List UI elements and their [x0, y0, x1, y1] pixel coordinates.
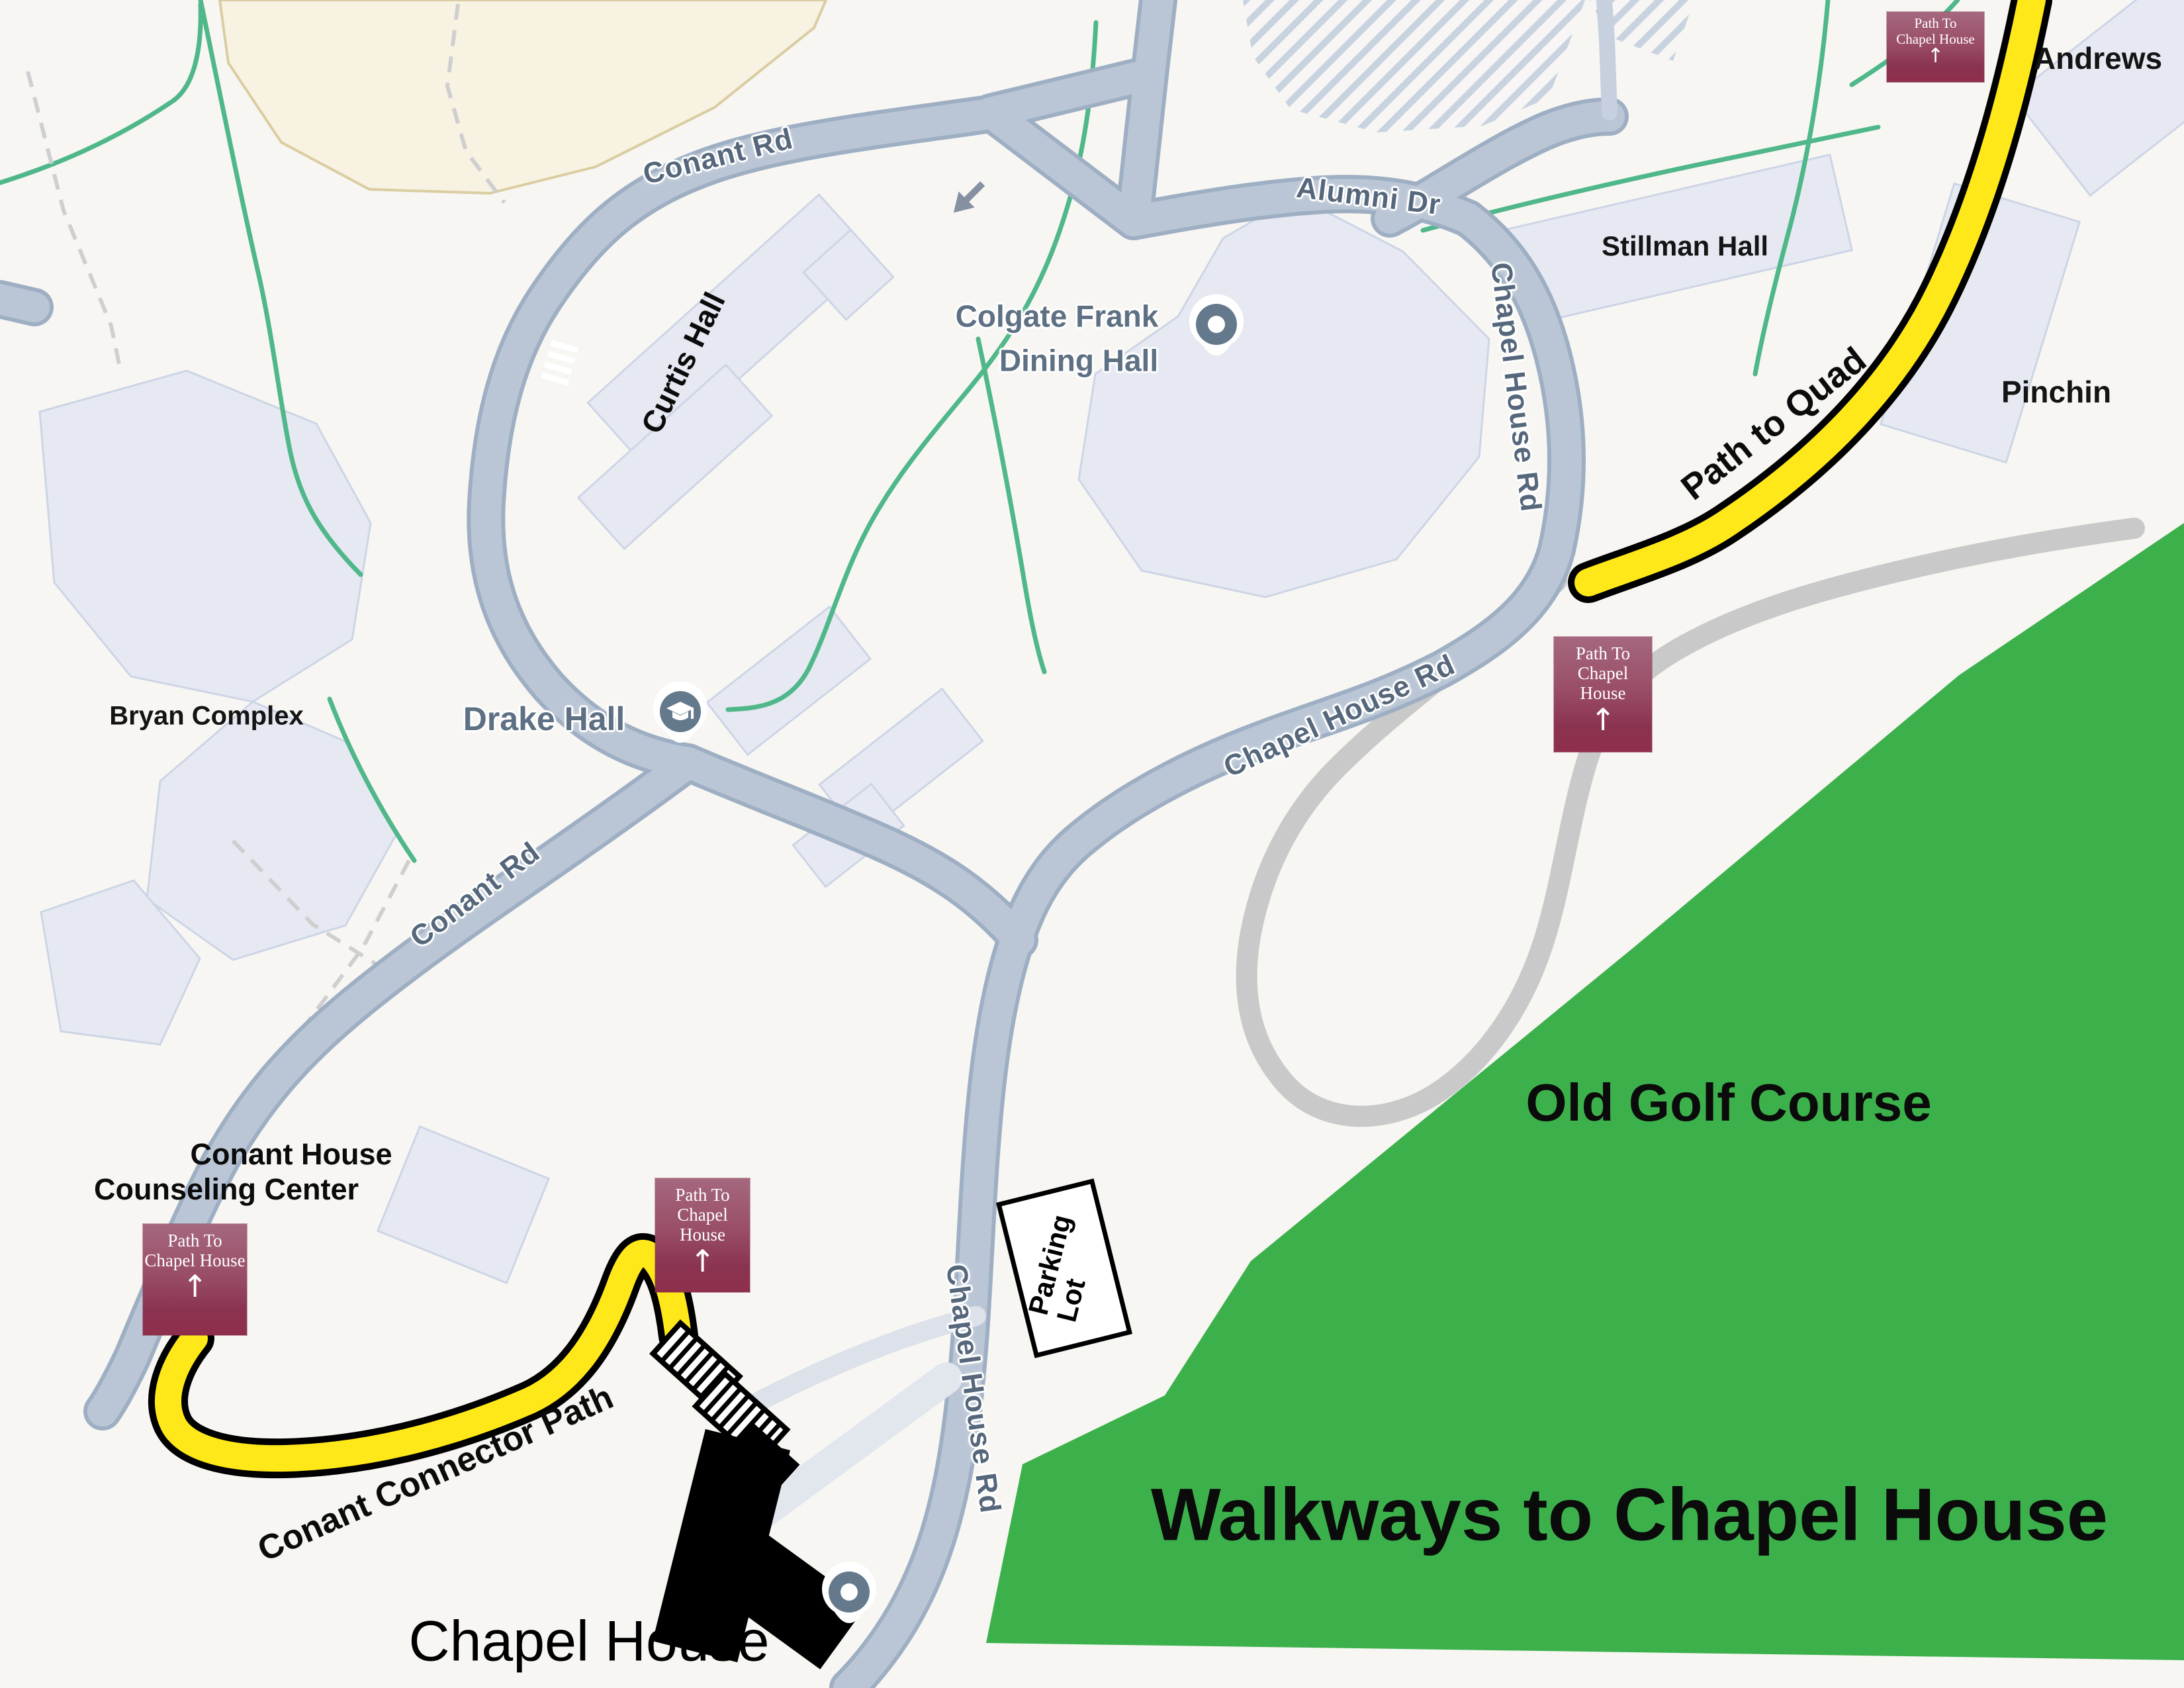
label-colgate-frank-line2: Dining Hall: [999, 343, 1158, 378]
label-old-golf-course: Old Golf Course: [1525, 1072, 1931, 1133]
campus-map: Conant Rd Alumni Dr Chapel House Rd Chap…: [0, 0, 2184, 1688]
crosswalk: [541, 340, 578, 385]
trail-sign-line1: Path To: [1554, 637, 1652, 663]
map-graphics: [0, 0, 2184, 1688]
trail-sign-line2: Chapel House: [143, 1250, 247, 1270]
pin-donut-icon: [841, 1583, 858, 1601]
label-colgate-frank-line1: Colgate Frank: [956, 299, 1159, 334]
trail-sign-line2: Chapel House: [1554, 663, 1652, 703]
parking-lot-sign-text: Parking Lot: [1024, 1212, 1105, 1325]
pin-donut-icon: [1208, 316, 1225, 333]
label-stillman-hall: Stillman Hall: [1602, 230, 1768, 262]
label-andrews: Andrews: [2034, 40, 2162, 76]
trail-sign-line1: Path To: [1887, 12, 1984, 32]
label-counseling-center: Counseling Center: [94, 1172, 359, 1207]
label-drake-hall: Drake Hall: [463, 700, 625, 738]
label-chapel-house: Chapel House: [408, 1609, 769, 1675]
trail-sign-line1: Path To: [655, 1178, 750, 1205]
label-conant-house: Conant House: [190, 1137, 392, 1172]
drake-hall-pin[interactable]: [653, 681, 707, 743]
trail-sign-conant-west: Path To Chapel House ↑: [143, 1224, 247, 1335]
up-arrow-icon: ↑: [143, 1270, 247, 1302]
trail-sign-conant-east: Path To Chapel House ↑: [655, 1178, 750, 1292]
trail-sign-top-right: Path To Chapel House ↑: [1887, 12, 1984, 82]
label-bryan-complex: Bryan Complex: [109, 702, 303, 731]
up-arrow-icon: ↑: [655, 1245, 750, 1277]
one-way-arrow-icon: [946, 175, 991, 220]
up-arrow-icon: ↑: [1887, 47, 1984, 66]
map-title: Walkways to Chapel House: [1151, 1472, 2108, 1558]
trail-sign-line2: Chapel House: [655, 1205, 750, 1244]
label-pinchin: Pinchin: [2001, 374, 2111, 410]
trail-sign-line1: Path To: [143, 1224, 247, 1250]
up-arrow-icon: ↑: [1554, 704, 1652, 735]
trail-sign-mid-right: Path To Chapel House ↑: [1554, 637, 1652, 752]
